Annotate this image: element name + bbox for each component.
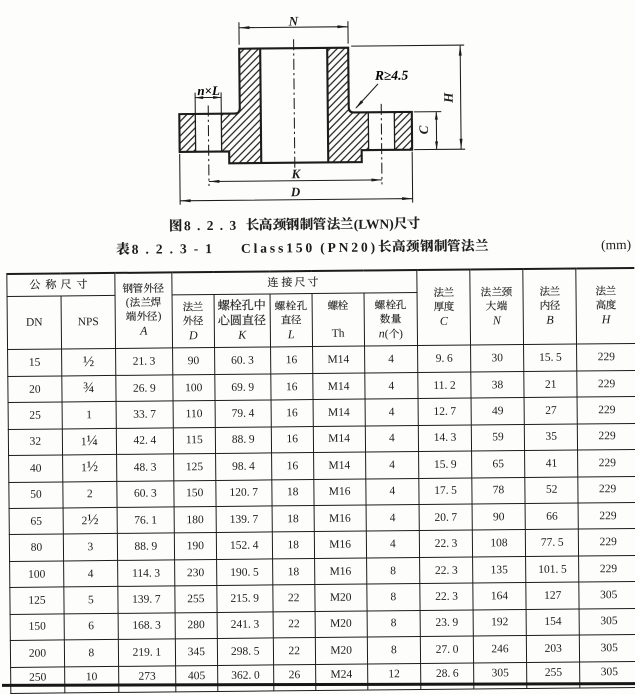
svg-text:N: N bbox=[288, 13, 299, 28]
svg-text:H: H bbox=[441, 92, 456, 104]
svg-text:D: D bbox=[290, 184, 301, 199]
svg-text:n×L: n×L bbox=[197, 83, 220, 98]
svg-text:C: C bbox=[416, 125, 431, 134]
svg-text:R≥4.5: R≥4.5 bbox=[374, 68, 409, 83]
svg-text:K: K bbox=[290, 166, 301, 181]
